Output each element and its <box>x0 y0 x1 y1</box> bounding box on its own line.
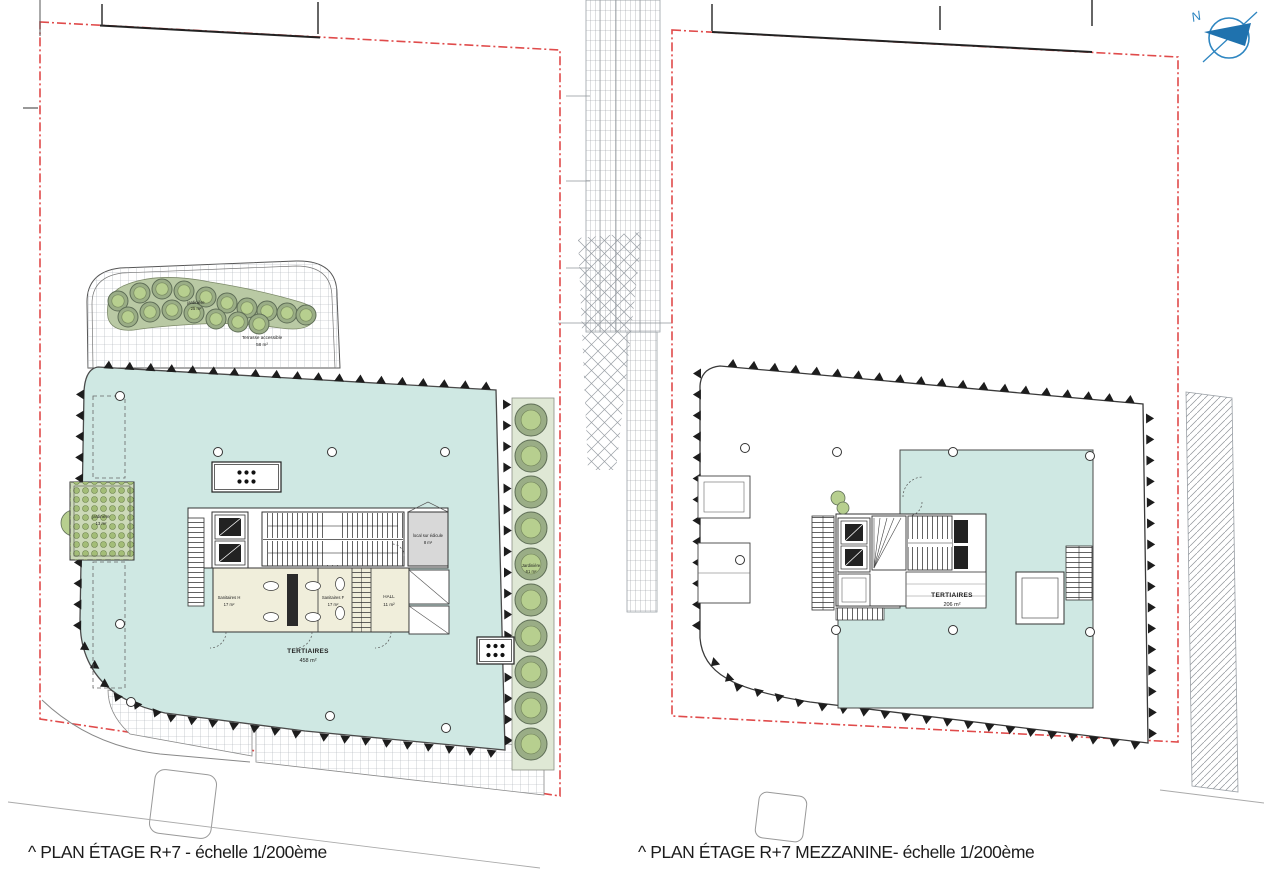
left-tertiaires-area: 458 m² <box>299 658 316 664</box>
left-terrace: jardinière 25 m² Terrasse accessible 58 … <box>87 261 340 368</box>
sanitaires-f-label: Sanitaires F <box>322 595 345 600</box>
left-tertiaires-label: TERTIAIRES <box>287 648 329 655</box>
adjacent-building-strip <box>558 0 672 612</box>
hall-area: 11 m² <box>383 602 395 607</box>
jardiniere-est-area: 61 m² <box>526 569 537 574</box>
sanitaires-h-area: 17 m² <box>224 602 235 607</box>
jardiniere-ouest-label: jardinière <box>91 514 110 519</box>
right-plan: TERTIAIRES 206 m² <box>672 0 1264 843</box>
edicule-room <box>408 512 448 566</box>
plan-sheet: jardinière 25 m² Terrasse accessible 58 … <box>0 0 1264 876</box>
terrasse-area: 58 m² <box>256 342 268 347</box>
right-tertiaires-area: 206 m² <box>943 602 960 608</box>
jardiniere-terrasse-area: 25 m² <box>191 306 202 311</box>
caption-left: ^ PLAN ÉTAGE R+7 - échelle 1/200ème <box>28 842 327 862</box>
north-label: N <box>1189 7 1203 24</box>
jardiniere-est-label: Jardinière <box>522 563 541 568</box>
edicule-area: 8 m² <box>424 540 433 545</box>
right-tertiaires-label: TERTIAIRES <box>931 592 973 599</box>
hall-label: HALL <box>383 594 395 599</box>
jardiniere-ouest-area: 13 m² <box>96 521 107 526</box>
edicule-label: local sur édicule <box>413 533 444 538</box>
left-tree-strip: Jardinière 61 m² <box>512 398 554 770</box>
terrasse-label: Terrasse accessible <box>242 335 283 340</box>
plans-canvas: jardinière 25 m² Terrasse accessible 58 … <box>0 0 1264 876</box>
caption-right: ^ PLAN ÉTAGE R+7 MEZZANINE- échelle 1/20… <box>638 842 1034 862</box>
north-arrow-icon: N <box>1189 7 1257 62</box>
left-plan-core: local sur édicule 8 m² <box>188 502 449 648</box>
sanitaires-f-area: 17 m² <box>328 602 339 607</box>
sanitaires-h-label: Sanitaires H <box>218 595 241 600</box>
jardiniere-terrasse-label: jardinière <box>186 300 205 305</box>
